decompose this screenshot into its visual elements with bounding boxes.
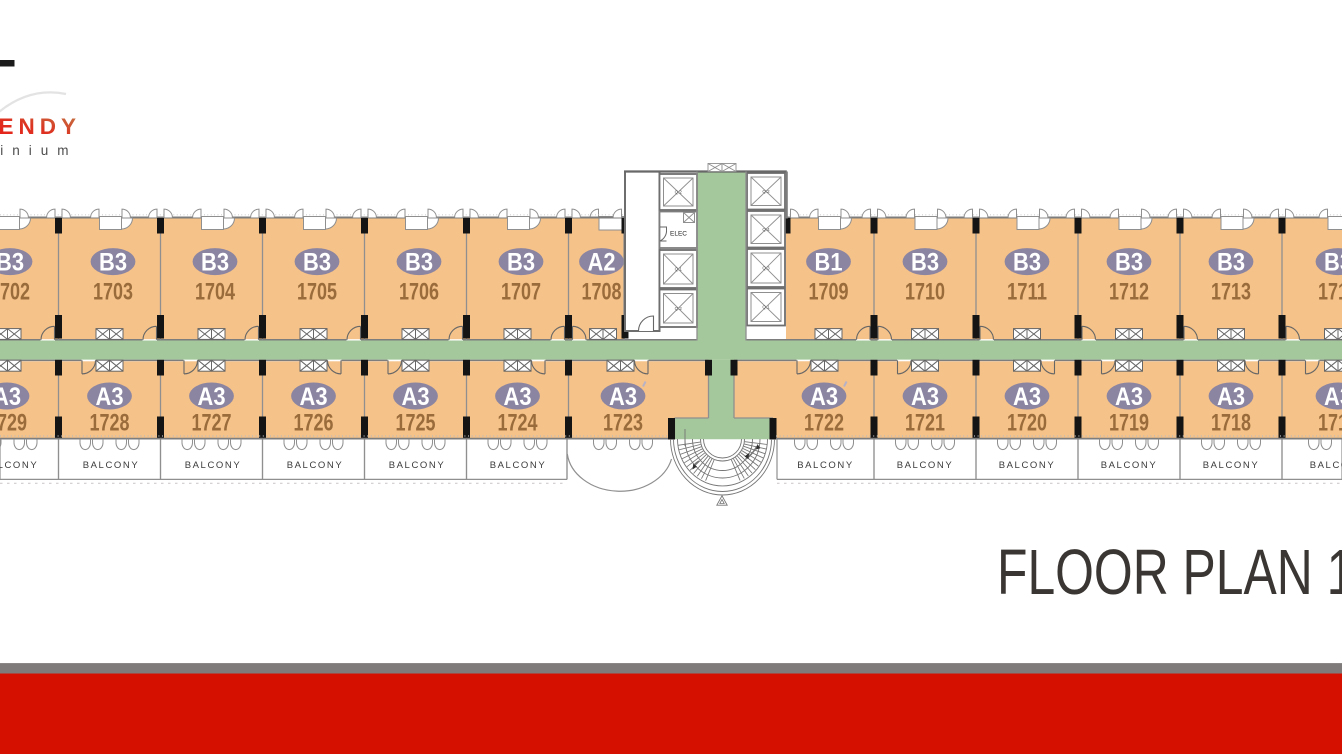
svg-text:1727: 1727 bbox=[192, 410, 232, 437]
svg-text:1721: 1721 bbox=[905, 410, 945, 437]
svg-text:A3: A3 bbox=[198, 383, 226, 411]
svg-text:1708: 1708 bbox=[582, 279, 622, 306]
svg-text:BALCONY: BALCONY bbox=[797, 460, 854, 471]
svg-text:1710: 1710 bbox=[905, 279, 945, 306]
svg-text:Q.2: Q.2 bbox=[675, 306, 683, 311]
svg-text:minium: minium bbox=[0, 143, 78, 158]
svg-text:BALCONY: BALCONY bbox=[1310, 460, 1342, 471]
svg-text:B3: B3 bbox=[0, 248, 24, 276]
svg-text:B3: B3 bbox=[911, 248, 939, 276]
svg-text:A3: A3 bbox=[504, 383, 532, 411]
svg-text:B3: B3 bbox=[303, 248, 331, 276]
svg-text:A3: A3 bbox=[1324, 383, 1342, 411]
svg-text:1703: 1703 bbox=[93, 279, 133, 306]
svg-text:ENDY: ENDY bbox=[0, 114, 81, 139]
svg-text:A3: A3 bbox=[1013, 383, 1041, 411]
svg-text:A3: A3 bbox=[300, 383, 328, 411]
svg-text:B3: B3 bbox=[1115, 248, 1143, 276]
svg-text:1717: 1717 bbox=[1318, 410, 1342, 437]
svg-text:BALCONY: BALCONY bbox=[897, 460, 954, 471]
svg-text:1713: 1713 bbox=[1211, 279, 1251, 306]
svg-text:1718: 1718 bbox=[1211, 410, 1251, 437]
svg-text:1719: 1719 bbox=[1109, 410, 1149, 437]
svg-text:A3: A3 bbox=[1115, 383, 1143, 411]
svg-text:1707: 1707 bbox=[501, 279, 541, 306]
svg-text:BALCONY: BALCONY bbox=[490, 460, 547, 471]
svg-text:A3: A3 bbox=[810, 383, 838, 411]
svg-text:B3: B3 bbox=[201, 248, 229, 276]
svg-text:A3: A3 bbox=[609, 383, 637, 411]
svg-text:BALCONY: BALCONY bbox=[1101, 460, 1158, 471]
svg-text:FLOOR PLAN 17: FLOOR PLAN 17 bbox=[997, 536, 1342, 608]
svg-text:BALCONY: BALCONY bbox=[83, 460, 140, 471]
svg-text:A3: A3 bbox=[96, 383, 124, 411]
svg-text:A3: A3 bbox=[911, 383, 939, 411]
svg-text:B3: B3 bbox=[1013, 248, 1041, 276]
svg-text:B3: B3 bbox=[99, 248, 127, 276]
svg-text:A3: A3 bbox=[402, 383, 430, 411]
svg-text:1724: 1724 bbox=[498, 410, 538, 437]
svg-text:1725: 1725 bbox=[396, 410, 436, 437]
svg-text:1729: 1729 bbox=[0, 410, 27, 437]
svg-text:B1: B1 bbox=[815, 248, 843, 276]
svg-text:BALCONY: BALCONY bbox=[0, 460, 38, 471]
svg-text:A3: A3 bbox=[0, 383, 21, 411]
svg-text:Q.4: Q.4 bbox=[762, 227, 770, 232]
svg-text:1706: 1706 bbox=[399, 279, 439, 306]
svg-text:1702: 1702 bbox=[0, 279, 30, 306]
svg-text:Q.3: Q.3 bbox=[762, 266, 770, 271]
svg-text:BALCONY: BALCONY bbox=[389, 460, 446, 471]
svg-text:1723: 1723 bbox=[603, 410, 643, 437]
svg-text:1711: 1711 bbox=[1007, 279, 1047, 306]
svg-text:BALCONY: BALCONY bbox=[185, 460, 242, 471]
svg-text:B3: B3 bbox=[405, 248, 433, 276]
svg-text:1712: 1712 bbox=[1109, 279, 1149, 306]
svg-text:Q.2: Q.2 bbox=[762, 189, 770, 194]
svg-text:B3: B3 bbox=[507, 248, 535, 276]
svg-text:BALCONY: BALCONY bbox=[287, 460, 344, 471]
svg-text:1705: 1705 bbox=[297, 279, 337, 306]
svg-text:BALCONY: BALCONY bbox=[999, 460, 1056, 471]
svg-text:Q.1: Q.1 bbox=[675, 267, 683, 272]
svg-text:1720: 1720 bbox=[1007, 410, 1047, 437]
svg-text:1714: 1714 bbox=[1318, 279, 1342, 306]
svg-text:B3: B3 bbox=[1217, 248, 1245, 276]
svg-text:Q.2: Q.2 bbox=[675, 190, 683, 195]
svg-text:Q.1: Q.1 bbox=[762, 305, 770, 310]
svg-text:1722: 1722 bbox=[804, 410, 844, 437]
svg-text:BALCONY: BALCONY bbox=[1203, 460, 1260, 471]
svg-text:B3: B3 bbox=[1324, 248, 1342, 276]
svg-text:1728: 1728 bbox=[90, 410, 130, 437]
svg-text:1704: 1704 bbox=[195, 279, 235, 306]
svg-text:A2: A2 bbox=[588, 248, 616, 276]
svg-text:1726: 1726 bbox=[294, 410, 334, 437]
svg-text:ELEC: ELEC bbox=[670, 231, 687, 238]
svg-text:A3: A3 bbox=[1217, 383, 1245, 411]
svg-text:1709: 1709 bbox=[809, 279, 849, 306]
